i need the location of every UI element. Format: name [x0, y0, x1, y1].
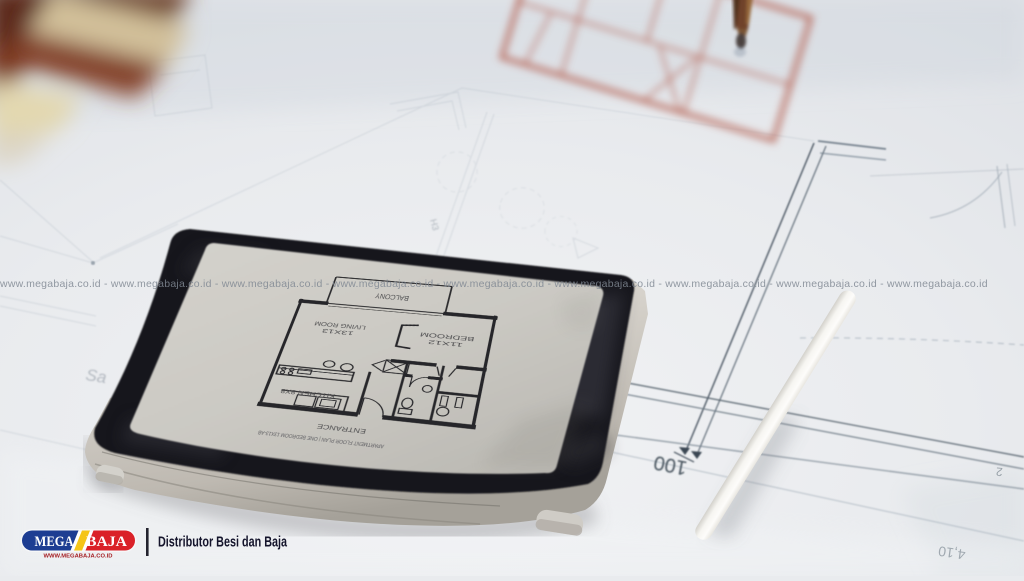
- svg-text:Distributor Besi dan Baja: Distributor Besi dan Baja: [158, 534, 287, 551]
- svg-text:MEGA: MEGA: [35, 534, 74, 550]
- svg-text:BAJA: BAJA: [86, 534, 127, 550]
- svg-text:WWW.MEGABAJA.CO.ID: WWW.MEGABAJA.CO.ID: [44, 554, 113, 560]
